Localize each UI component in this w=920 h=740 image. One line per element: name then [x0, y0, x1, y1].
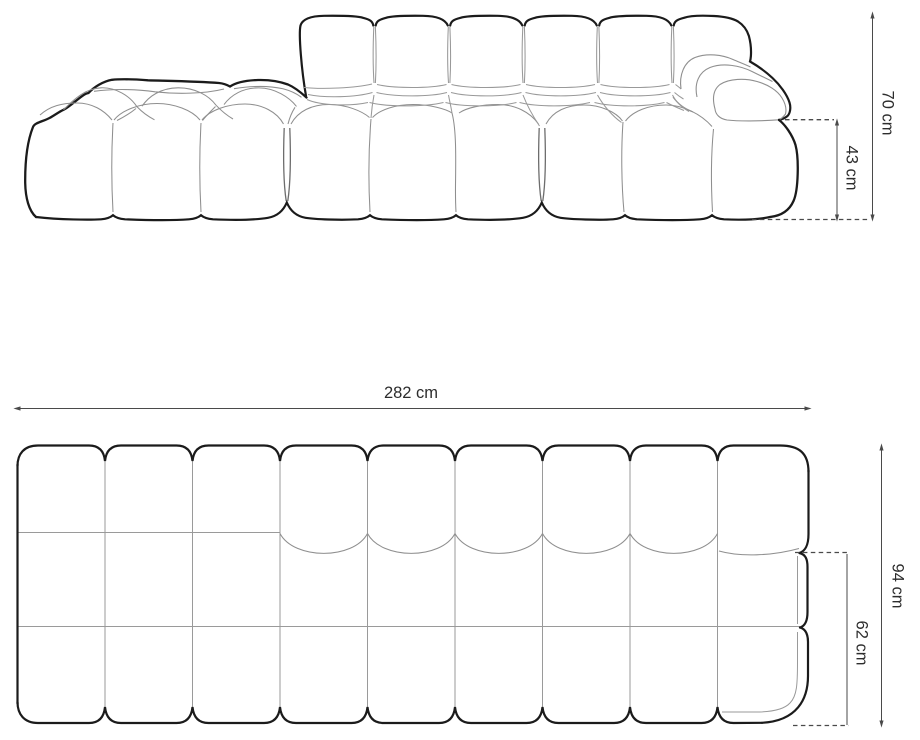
svg-text:43 cm: 43 cm [843, 146, 861, 191]
svg-text:94 cm: 94 cm [889, 564, 907, 609]
svg-text:62 cm: 62 cm [853, 621, 871, 666]
svg-text:282 cm: 282 cm [384, 384, 438, 402]
svg-text:70 cm: 70 cm [879, 91, 897, 136]
